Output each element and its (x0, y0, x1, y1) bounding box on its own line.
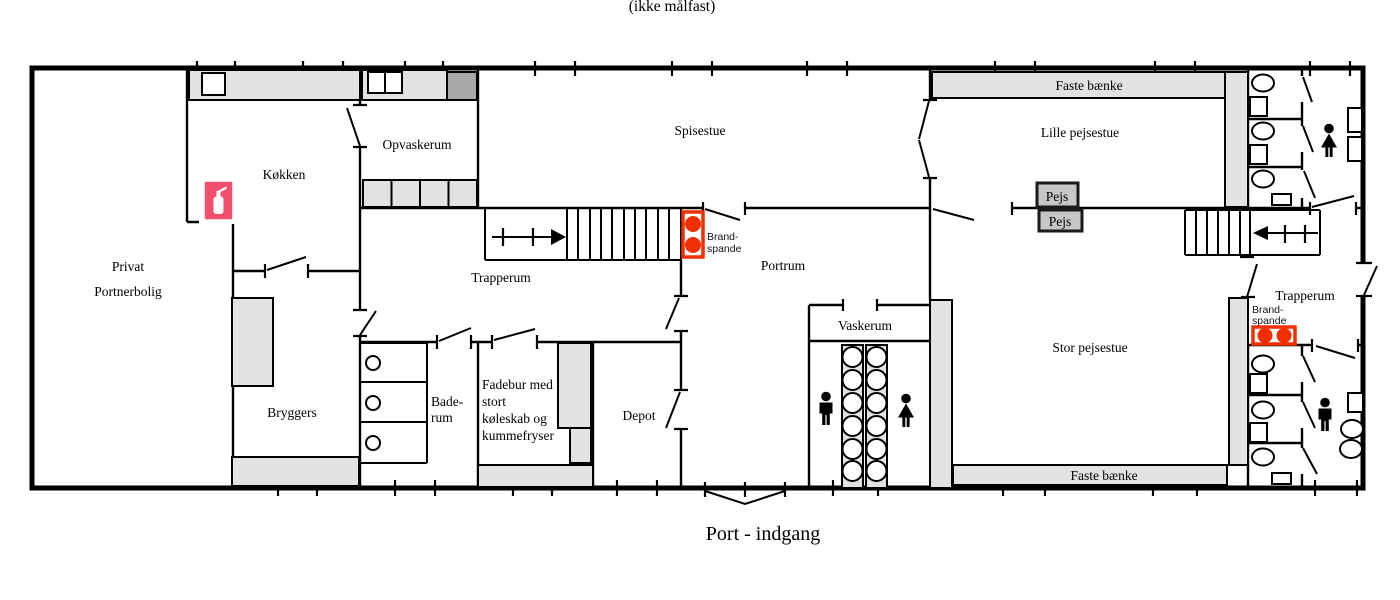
sink-icon (1272, 194, 1291, 205)
refrigerator (558, 343, 591, 428)
sink-icon (1348, 108, 1362, 132)
room-label-kitchen: Køkken (263, 167, 306, 182)
room-label-pantry-1: Fadebur med (482, 377, 553, 392)
entrance-label: Port - indgang (706, 523, 820, 545)
room-label-private-1: Privat (112, 259, 144, 274)
room-label-washroom: Vaskerum (838, 318, 892, 333)
fireplace-label-upper: Pejs (1046, 189, 1069, 204)
urinal-icon (1341, 420, 1363, 438)
room-label-bath-2: rum (431, 410, 453, 425)
shower-icon (366, 356, 380, 370)
urinal-icon (1340, 440, 1362, 458)
bench-back-strip (1225, 72, 1248, 207)
room-label-dishroom: Opvaskerum (383, 137, 452, 152)
scullery-counter (232, 457, 359, 486)
room-label-big-lounge: Stor pejsestue (1052, 340, 1127, 355)
sink-icon (1250, 374, 1267, 393)
bench-label-bottom: Faste bænke (1070, 468, 1137, 483)
sink-icon (1250, 97, 1267, 116)
toilet-icon (1252, 75, 1274, 92)
room-label-pantry-4: kummefryser (482, 428, 554, 443)
fire-extinguisher-sign (199, 177, 238, 224)
pantry-counter (478, 465, 593, 487)
room-label-dining: Spisestue (674, 123, 725, 138)
plan-title: (ikke målfast) (629, 0, 716, 15)
fire-buckets-label-2: spande (1252, 315, 1287, 327)
kitchen-window (202, 73, 225, 95)
scullery-cabinet (232, 298, 273, 386)
fireplace-label-lower: Pejs (1049, 214, 1072, 229)
bench-label-top: Faste bænke (1055, 78, 1122, 93)
right-wall-door (1356, 263, 1377, 296)
toilet-icon (1252, 449, 1274, 466)
room-label-stairwell-right: Trapperum (1275, 288, 1335, 303)
bench-back-strip (1229, 298, 1248, 465)
chest-freezer (570, 428, 591, 463)
room-label-pantry-2: stort (482, 394, 506, 409)
toilet-icon (1252, 402, 1274, 419)
sink-icon (1348, 137, 1362, 161)
shower-icon (366, 396, 380, 410)
fire-buckets-label-1: Brand- (707, 231, 739, 243)
room-label-small-lounge: Lille pejsestue (1041, 125, 1119, 140)
room-label-depot: Depot (623, 408, 656, 423)
sink-icon (1250, 145, 1267, 164)
room-label-portroom: Portrum (761, 258, 806, 273)
sink-icon (1272, 473, 1291, 484)
sink-icon (1348, 393, 1363, 412)
shower-icon (366, 436, 380, 450)
floor-plan: (ikke målfast) Port - indgang (0, 0, 1400, 600)
sink-icon (1250, 423, 1267, 442)
room-label-pantry-3: køleskab og (482, 411, 547, 426)
room-label-scullery: Bryggers (267, 405, 317, 420)
toilet-icon (1252, 171, 1274, 188)
toilet-icon (1252, 356, 1274, 373)
room-label-private-2: Portnerbolig (94, 284, 162, 299)
dark-cabinet (447, 72, 477, 100)
room-label-stairwell-left: Trapperum (471, 270, 531, 285)
fire-buckets-label-2: spande (707, 243, 742, 255)
toilet-icon (1252, 123, 1274, 140)
bench-back-strip (930, 300, 952, 488)
room-label-bath-1: Bade- (431, 394, 464, 409)
